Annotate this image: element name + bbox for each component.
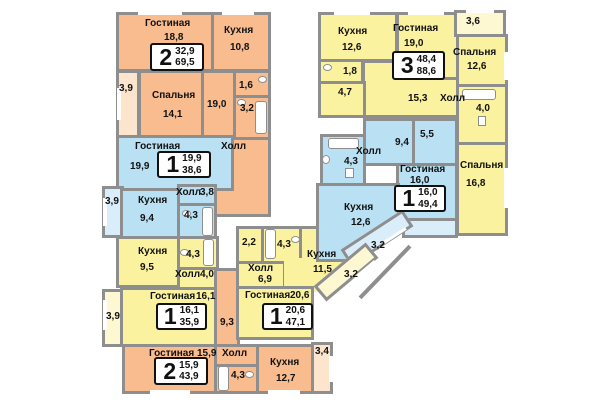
room-label: Кухня xyxy=(344,203,373,213)
room-label: Спальня xyxy=(460,161,503,171)
room-area: 3,8 xyxy=(200,188,214,198)
room-label: Гостиная xyxy=(150,292,195,302)
badge-living-area: 32,9 xyxy=(175,46,194,58)
window-icon xyxy=(466,9,494,13)
room-area: 4,3 xyxy=(344,157,358,167)
sink-icon xyxy=(291,236,300,243)
badge-room-count: 1 xyxy=(270,305,283,328)
room-area: 3,6 xyxy=(466,17,480,27)
room-balcony-apt5 xyxy=(454,10,506,37)
room-area: 4,3 xyxy=(277,240,291,250)
room-area: 5,5 xyxy=(420,130,434,140)
badge-total-area: 49,4 xyxy=(418,199,437,211)
room-label: Гостиная xyxy=(145,19,190,29)
apartment-badge: 1 16,0 49,4 xyxy=(394,185,446,212)
bathtub-icon xyxy=(265,229,276,259)
room-area: 12,6 xyxy=(351,218,370,228)
apartment-badge: 2 32,9 69,5 xyxy=(150,43,204,71)
room-area: 14,1 xyxy=(163,110,182,120)
room-area: 9,4 xyxy=(395,138,409,148)
room-label: Холл xyxy=(221,142,246,152)
room-area: 1,8 xyxy=(343,67,357,77)
room-area: 12,7 xyxy=(276,374,295,384)
room-area: 3,2 xyxy=(344,270,358,280)
room-area: 11,5 xyxy=(313,265,332,275)
badge-total-area: 43,9 xyxy=(179,371,198,383)
apartment-badge: 3 48,4 88,6 xyxy=(392,51,445,80)
room-area: 12,6 xyxy=(467,62,486,72)
room-area: 15,3 xyxy=(408,94,427,104)
room-label: Холл xyxy=(248,264,273,274)
apartment-badge: 2 15,9 43,9 xyxy=(154,357,208,385)
bathtub-icon xyxy=(255,101,267,134)
window-icon xyxy=(222,11,254,15)
room-area: 6,9 xyxy=(258,275,272,285)
corridor-area: 9,3 xyxy=(220,318,234,328)
badge-room-count: 2 xyxy=(159,46,172,69)
room-area: 3,2 xyxy=(371,241,385,251)
badge-room-count: 2 xyxy=(163,360,176,383)
room-area: 19,0 xyxy=(207,100,226,110)
room-label: Кухня xyxy=(338,27,367,37)
window-icon xyxy=(138,11,182,15)
room-label: Кухня xyxy=(270,358,299,368)
room-area: 16,1 xyxy=(196,292,215,302)
window-icon xyxy=(504,168,508,208)
room-area: 3,9 xyxy=(119,84,133,94)
room-label: Кухня xyxy=(138,247,167,257)
room-label: Холл xyxy=(222,349,247,359)
room-area: 4,3 xyxy=(184,211,198,221)
room-kitchen-apt4 xyxy=(256,344,314,394)
badge-total-area: 38,6 xyxy=(182,165,201,177)
room-bedroom2-apt5 xyxy=(456,142,508,236)
room-area: 3,9 xyxy=(105,197,119,207)
window-icon xyxy=(150,390,190,394)
room-area: 9,5 xyxy=(140,263,154,273)
room-storage-apt6 xyxy=(412,118,458,166)
room-label: Гостиная xyxy=(393,24,438,34)
room-area: 3,4 xyxy=(315,347,329,357)
toilet-icon xyxy=(478,116,486,126)
room-label: Кухня xyxy=(224,26,253,36)
room-area: 4,3 xyxy=(186,250,200,260)
room-area: 1,6 xyxy=(239,81,253,91)
bathtub-icon xyxy=(328,138,359,149)
room-area: 3,2 xyxy=(240,104,254,114)
bathtub-icon xyxy=(462,89,496,100)
room-area: 16,8 xyxy=(466,179,485,189)
badge-room-count: 1 xyxy=(402,187,415,210)
room-kitchen-apt5 xyxy=(318,12,398,62)
badge-room-count: 1 xyxy=(164,305,177,328)
badge-living-area: 20,6 xyxy=(286,305,305,317)
room-area: 4,7 xyxy=(338,88,352,98)
room-area: 19,0 xyxy=(404,39,423,49)
room-label: Кухня xyxy=(138,196,167,206)
room-label: Холл xyxy=(440,94,465,104)
bathtub-icon xyxy=(203,239,214,266)
room-label: Холл xyxy=(175,270,200,280)
room-area: 9,4 xyxy=(140,214,154,224)
sink-icon xyxy=(258,76,267,83)
room-label: Спальня xyxy=(152,91,195,101)
sink-icon xyxy=(323,64,332,71)
room-area: 10,8 xyxy=(230,43,249,53)
room-label: Спальня xyxy=(453,48,496,58)
badge-total-area: 35,9 xyxy=(180,317,199,329)
room-label: Гостиная xyxy=(400,165,445,175)
window-icon xyxy=(329,356,333,382)
bathtub-icon xyxy=(202,207,213,236)
apartment-badge: 1 20,6 47,1 xyxy=(262,303,313,330)
bathtub-icon xyxy=(218,366,229,391)
badge-total-area: 47,1 xyxy=(286,317,305,329)
badge-room-count: 1 xyxy=(166,153,179,176)
badge-living-area: 16,0 xyxy=(418,187,437,199)
badge-total-area: 88,6 xyxy=(417,66,436,78)
sink-icon xyxy=(322,155,330,164)
sink-icon xyxy=(245,371,254,378)
room-area: 18,8 xyxy=(164,33,183,43)
badge-living-area: 15,9 xyxy=(179,360,198,372)
room-label: Кухня xyxy=(307,250,336,260)
floor-plan: Гостиная 18,8 Кухня 10,8 3,9 Спальня 14,… xyxy=(0,0,600,400)
window-icon xyxy=(408,11,444,15)
room-area: 3,9 xyxy=(106,312,120,322)
room-area: 4,3 xyxy=(231,371,245,381)
room-bedroom-apt0 xyxy=(138,70,204,140)
toilet-icon xyxy=(345,168,354,178)
apartment-badge: 1 19,9 38,6 xyxy=(157,151,211,178)
room-area: 2,2 xyxy=(242,238,256,248)
badge-room-count: 3 xyxy=(401,54,414,77)
badge-living-area: 16,1 xyxy=(180,305,199,317)
apartment-badge: 1 16,1 35,9 xyxy=(156,303,207,330)
room-label: Холл xyxy=(176,188,201,198)
room-area: 4,0 xyxy=(476,104,490,114)
badge-living-area: 48,4 xyxy=(417,54,436,66)
window-icon xyxy=(504,52,508,80)
room-area: 19,9 xyxy=(130,162,149,172)
room-area: 4,0 xyxy=(200,270,214,280)
room-area: 20,6 xyxy=(290,291,309,301)
badge-total-area: 69,5 xyxy=(175,57,194,69)
window-icon xyxy=(334,11,370,15)
room-label: Холл xyxy=(356,147,381,157)
room-label: Гостиная xyxy=(245,291,290,301)
room-area: 12,6 xyxy=(342,43,361,53)
badge-living-area: 19,9 xyxy=(182,153,201,165)
window-icon xyxy=(268,390,300,394)
